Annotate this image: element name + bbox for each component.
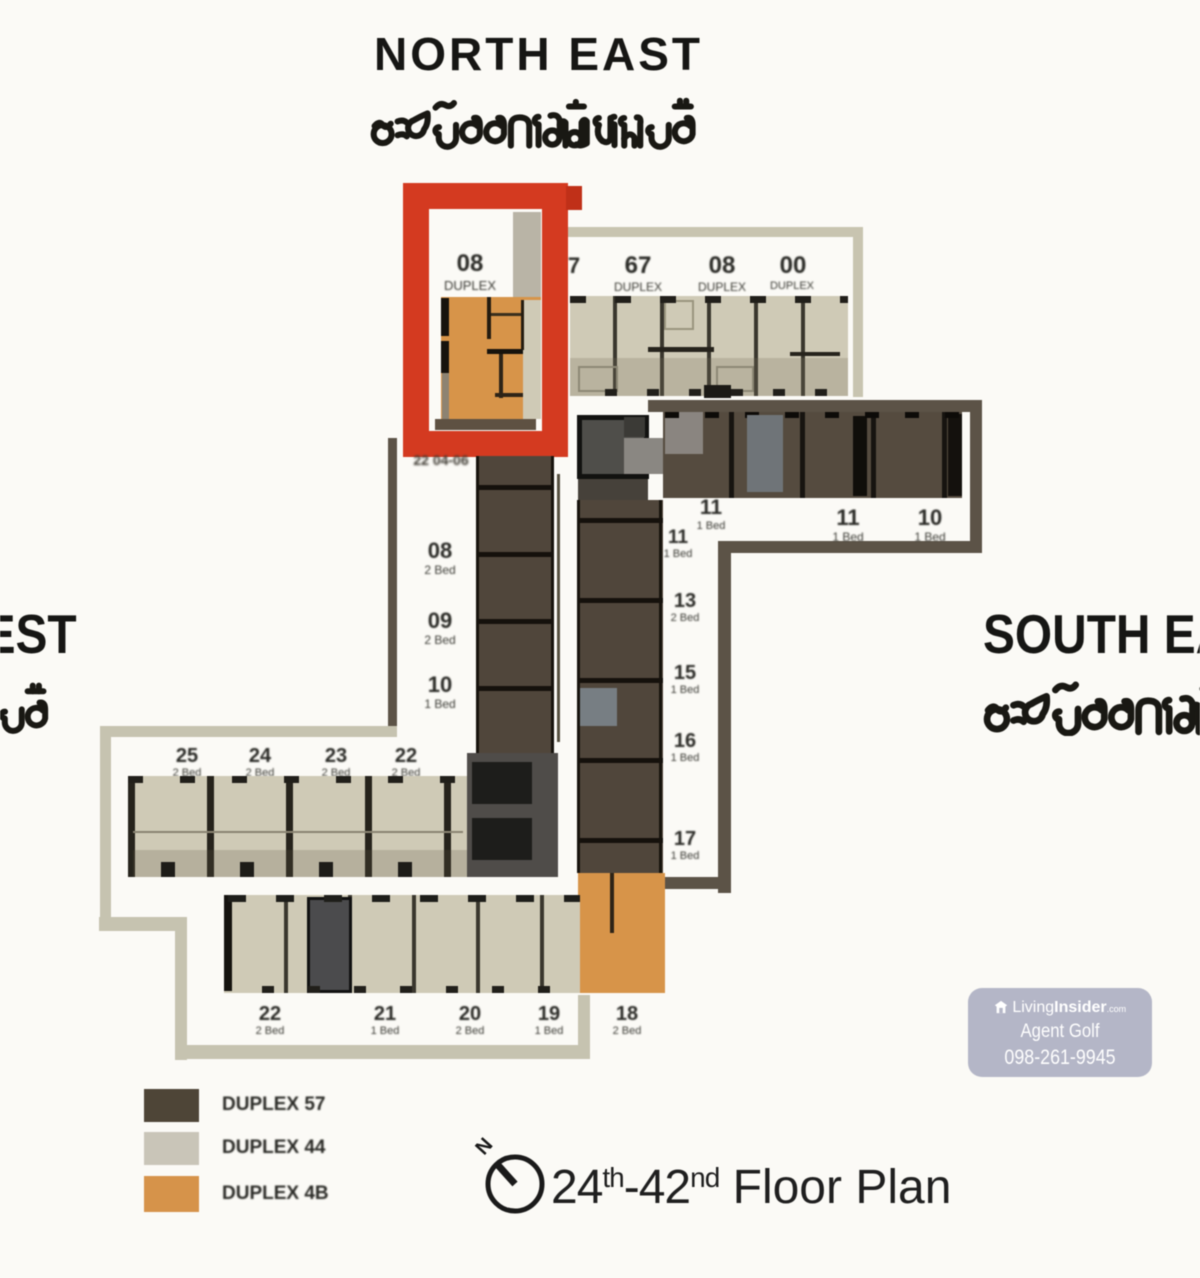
svg-text:N: N [471,1134,497,1159]
